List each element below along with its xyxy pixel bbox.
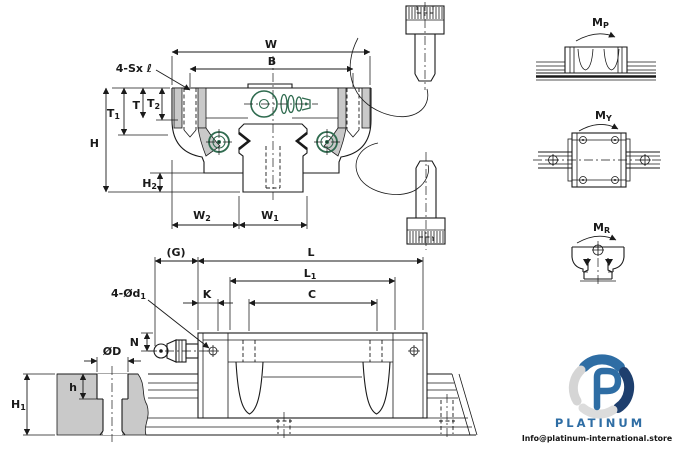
moment-label-mr: MR (593, 221, 610, 235)
linear-guide-dimension-drawing: W B 4-Sx ℓ H T1 T T2 H2 W2 W1 (0, 0, 675, 450)
dim-label-l1: L1 (304, 267, 317, 281)
dim-label-t1: T1 (107, 107, 121, 121)
dim-label-h2: H2 (142, 177, 157, 191)
seal-mark-right (605, 259, 613, 266)
dim-label-w: W (265, 38, 277, 51)
grease-nipple-icon (244, 91, 318, 117)
dim-label-t: T (132, 99, 140, 112)
brand-watermark: PLATINUM Info@platinum-international.sto… (522, 359, 672, 443)
socket-head-bolt-top-icon (406, 2, 444, 90)
rail-profile (239, 56, 307, 200)
moment-diagram-pitch: MP (536, 16, 656, 80)
dim-label-w2: W2 (193, 209, 211, 223)
rail-section-cut (57, 366, 148, 442)
side-view: (G) L L1 K C 4-Ød1 N ØD h H1 (11, 246, 477, 442)
dim-label-l: L (307, 246, 314, 259)
yaw-arrow-icon (579, 124, 618, 131)
diagram-canvas: W B 4-Sx ℓ H T1 T T2 H2 W2 W1 (0, 0, 675, 450)
dim-label-t2: T2 (147, 97, 160, 111)
pitch-arrow-icon (576, 34, 615, 41)
dim-label-h: H (90, 137, 99, 150)
moment-diagram-roll: MR (572, 221, 624, 285)
moment-diagram-yaw: MY (533, 109, 664, 187)
dim-label-n: N (130, 336, 139, 349)
dim-label-h1: H1 (11, 398, 26, 412)
moment-label-my: MY (595, 109, 612, 123)
screw-note: 4-Sx ℓ (116, 62, 152, 75)
cross-section-view: W B 4-Sx ℓ H T1 T T2 H2 W2 W1 (90, 38, 371, 229)
seal-mark-left (583, 259, 591, 266)
brand-logo-icon (573, 359, 629, 414)
dim-label-h-depth: h (69, 381, 77, 394)
cross-section-dimensions: W B 4-Sx ℓ H T1 T T2 H2 W2 W1 (90, 38, 370, 229)
dim-label-g: (G) (166, 246, 185, 259)
dim-label-k: K (203, 288, 212, 301)
dim-label-d: ØD (103, 345, 121, 358)
dim-label-b: B (268, 55, 276, 68)
brand-email: Info@platinum-international.store (522, 434, 672, 443)
socket-head-bolt-bottom-icon (407, 152, 445, 250)
hole-note: 4-Ød1 (111, 287, 146, 301)
dim-label-w1: W1 (261, 209, 279, 223)
moment-label-mp: MP (592, 16, 609, 30)
section-hatch-areas (174, 88, 370, 156)
dim-label-c: C (308, 288, 316, 301)
roll-arrow-icon (577, 236, 616, 243)
carriage-block-side (198, 333, 427, 418)
brand-name: PLATINUM (555, 416, 645, 430)
